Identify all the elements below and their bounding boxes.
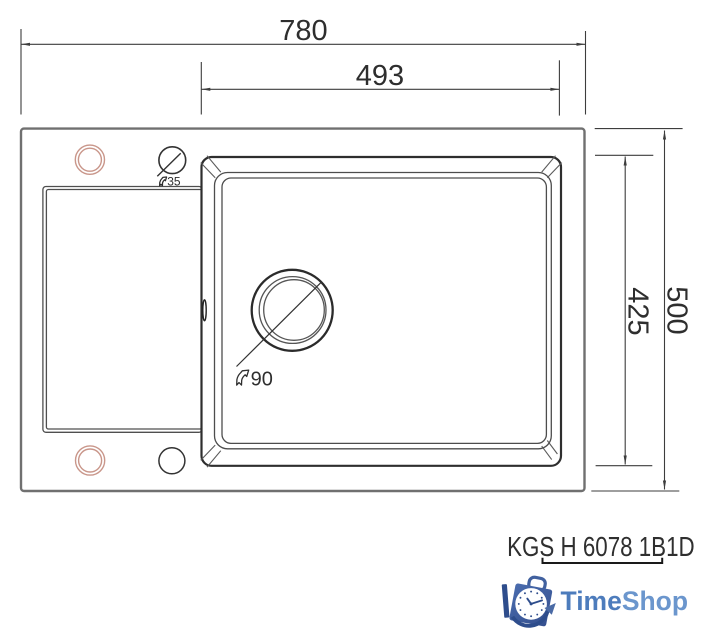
svg-text:493: 493 bbox=[356, 60, 404, 92]
svg-text:780: 780 bbox=[279, 15, 327, 47]
svg-text:TimeShop: TimeShop bbox=[561, 586, 689, 616]
svg-text:500: 500 bbox=[661, 286, 693, 334]
svg-text:90: 90 bbox=[251, 369, 273, 391]
svg-text:35: 35 bbox=[167, 175, 181, 189]
svg-text:425: 425 bbox=[622, 287, 654, 335]
svg-text:KGS H 6078 1B1D: KGS H 6078 1B1D bbox=[507, 531, 695, 562]
